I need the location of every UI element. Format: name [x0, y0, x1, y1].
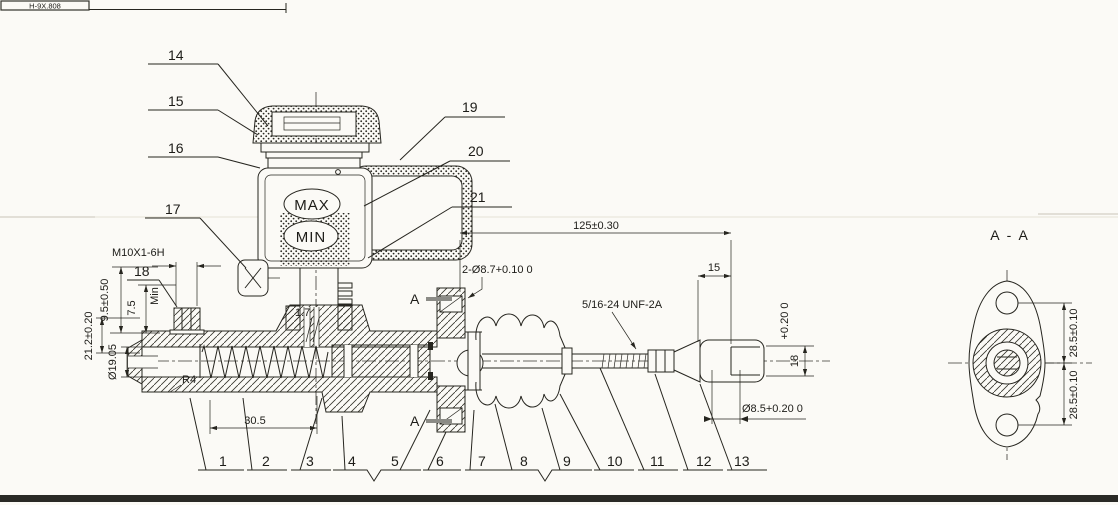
dim-min-note: Min	[149, 287, 161, 305]
boot-clamp	[468, 332, 480, 390]
part-number-19: 19	[462, 99, 478, 115]
part-number-16: 16	[168, 140, 184, 156]
snap-ring-bottom	[428, 372, 433, 380]
part-number-14: 14	[168, 47, 184, 63]
dim-9-5: 9.5±0.50	[99, 279, 111, 322]
dim-28-5-bottom: 28.5±0.10	[1068, 371, 1080, 420]
boot-bottom	[476, 372, 566, 408]
section-view-title: A - A	[990, 227, 1030, 243]
part-number-2: 2	[262, 453, 270, 469]
dim-18: 18	[789, 355, 801, 367]
cap-skirt	[261, 143, 369, 152]
part-number-12: 12	[696, 453, 712, 469]
dim-15: 15	[708, 262, 720, 274]
dim-28-5-top: 28.5±0.10	[1068, 309, 1080, 358]
clevis-sleeve	[700, 340, 764, 382]
part-number-15: 15	[168, 93, 184, 109]
part-number-6: 6	[436, 453, 444, 469]
reservoir-neck	[268, 158, 360, 168]
part-number-3: 3	[306, 453, 314, 469]
part-number-9: 9	[563, 453, 571, 469]
jam-nut	[648, 350, 674, 372]
dim-holes: 2-Ø8.7+0.10 0	[462, 264, 533, 276]
dim-thread-left: M10X1-6H	[112, 247, 165, 259]
dim-19-05: Ø19.05	[107, 344, 119, 380]
part-number-21: 21	[470, 189, 486, 205]
part-number-20: 20	[468, 143, 484, 159]
inlet-hex-fitting	[174, 308, 200, 332]
part-number-4: 4	[348, 453, 356, 469]
part-number-8: 8	[520, 453, 528, 469]
cap-gasket	[266, 152, 362, 158]
part-number-11: 11	[650, 453, 665, 469]
dim-7-5: 7.5	[126, 300, 138, 315]
dim-18-tolerance: +0.20 0	[779, 302, 791, 339]
part-number-5: 5	[391, 453, 399, 469]
part-number-18: 18	[134, 263, 150, 279]
section-marker-top: A	[410, 291, 420, 307]
dim-125: 125±0.30	[573, 220, 619, 232]
return-spring	[202, 346, 328, 378]
clevis-taper	[674, 340, 700, 382]
part-number-10: 10	[607, 453, 623, 469]
dim-30-5: 30.5	[244, 415, 265, 427]
drawing-sheet: H-9X.808 MAX MIN	[0, 0, 1118, 505]
dim-21-2: 21.2±0.20	[83, 312, 95, 361]
part-number-13: 13	[734, 453, 750, 469]
boot-top	[476, 314, 566, 350]
dim-1-7: 1.7	[295, 307, 310, 319]
drawing-canvas: H-9X.808 MAX MIN	[0, 0, 1118, 505]
bottom-border	[0, 495, 1118, 502]
dim-thread-rod: 5/16-24 UNF-2A	[582, 299, 663, 311]
bolt-hole-top	[996, 292, 1018, 314]
min-level-label: MIN	[296, 229, 327, 246]
part-number-17: 17	[165, 201, 181, 217]
title-block-text: H-9X.808	[29, 2, 61, 11]
section-marker-bottom: A	[410, 413, 420, 429]
part-number-1: 1	[219, 453, 227, 469]
bolt-hole-bottom	[996, 414, 1018, 436]
boot-bead	[562, 348, 572, 374]
max-level-label: MAX	[294, 197, 330, 214]
section-view-a-a: A - A 28.5±0.10 28.5±0.10	[948, 227, 1092, 460]
snap-ring-top	[428, 342, 433, 350]
part-number-7: 7	[478, 453, 486, 469]
sheet-frame: H-9X.808	[0, 1, 1118, 502]
dim-8-5: Ø8.5+0.20 0	[742, 403, 803, 415]
dim-r4: R4	[182, 374, 196, 386]
